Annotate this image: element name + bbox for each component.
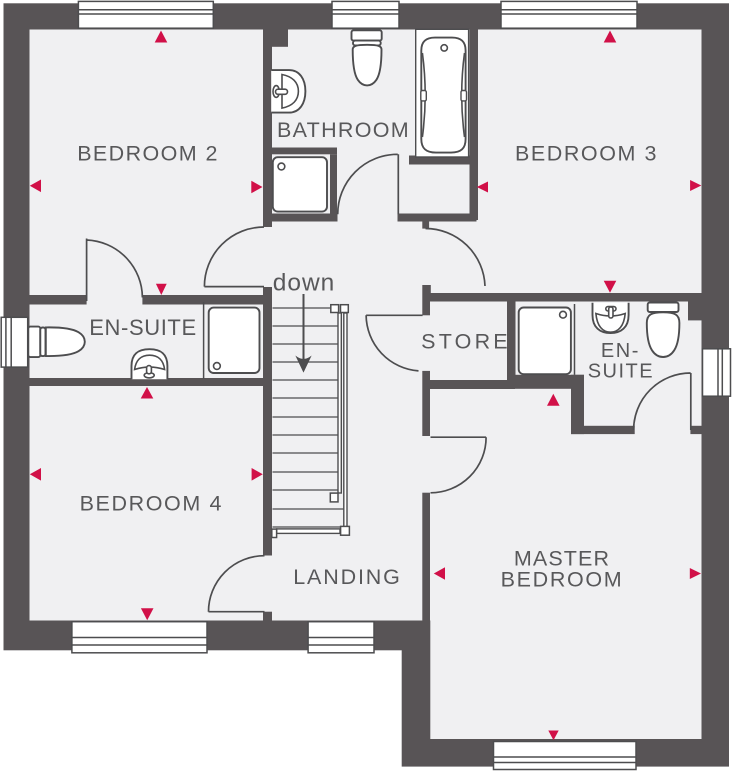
svg-text:SUITE: SUITE [588,361,654,383]
svg-text:EN-: EN- [601,340,640,362]
svg-text:LANDING: LANDING [293,565,402,589]
svg-text:STORE: STORE [421,329,511,353]
svg-text:BEDROOM 2: BEDROOM 2 [77,142,219,166]
svg-text:down: down [273,270,336,297]
svg-text:BATHROOM: BATHROOM [277,118,410,142]
svg-text:BEDROOM: BEDROOM [501,568,624,592]
svg-text:EN-SUITE: EN-SUITE [89,315,196,340]
svg-text:BEDROOM 3: BEDROOM 3 [515,142,658,166]
svg-text:BEDROOM 4: BEDROOM 4 [80,491,223,515]
